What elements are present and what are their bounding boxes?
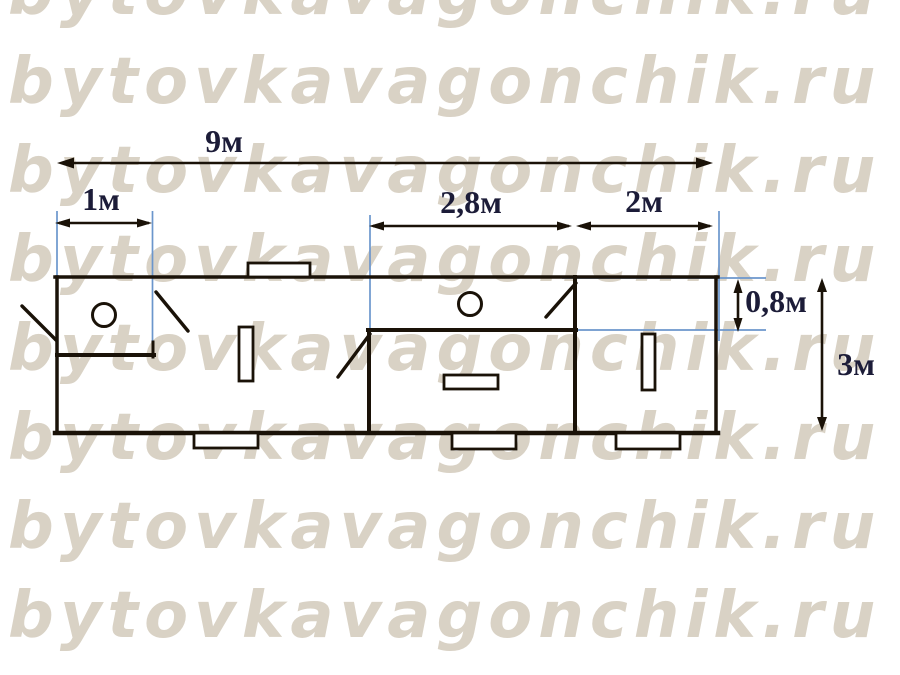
arrowhead	[369, 222, 384, 231]
windows	[93, 263, 681, 449]
fixture-circle-vestibule	[459, 293, 482, 316]
extension-lines	[57, 211, 766, 348]
fixture-circle-left-room	[93, 304, 116, 327]
arrowhead	[57, 158, 74, 169]
window-top-wall	[248, 263, 310, 277]
arrowhead	[734, 279, 743, 293]
label-1m: 1м	[82, 181, 120, 217]
label-9m: 9м	[205, 123, 243, 159]
door-swing-middle-room	[338, 334, 370, 377]
arrowhead	[137, 219, 152, 228]
fixture-vertical-right-room	[642, 334, 655, 390]
fixture-vertical-left-room	[239, 327, 253, 381]
window-bottom-2	[452, 433, 516, 449]
arrowhead	[698, 222, 713, 231]
label-2-8m: 2,8м	[440, 184, 502, 220]
door-swing-exterior-left	[22, 306, 56, 340]
fixture-table-middle-room	[444, 375, 498, 389]
door-swing-vestibule	[546, 283, 576, 317]
window-bottom-3	[616, 433, 680, 449]
arrowhead	[817, 417, 827, 431]
window-bottom-1	[194, 433, 258, 448]
arrowhead	[557, 222, 572, 231]
walls	[55, 277, 718, 433]
arrowhead	[696, 158, 713, 169]
arrowhead	[817, 278, 827, 292]
door-swing-left-room	[156, 292, 188, 331]
label-3m: 3м	[837, 346, 875, 382]
floor-plan-drawing: 9м 1м 2,8м 2м 0,8м 3м	[0, 0, 900, 675]
floor-plan-image: bytovkavagonchik.ru bytovkavagonchik.ru …	[0, 0, 900, 675]
label-2m: 2м	[625, 183, 663, 219]
arrowhead	[576, 222, 591, 231]
label-0-8m: 0,8м	[745, 283, 807, 319]
